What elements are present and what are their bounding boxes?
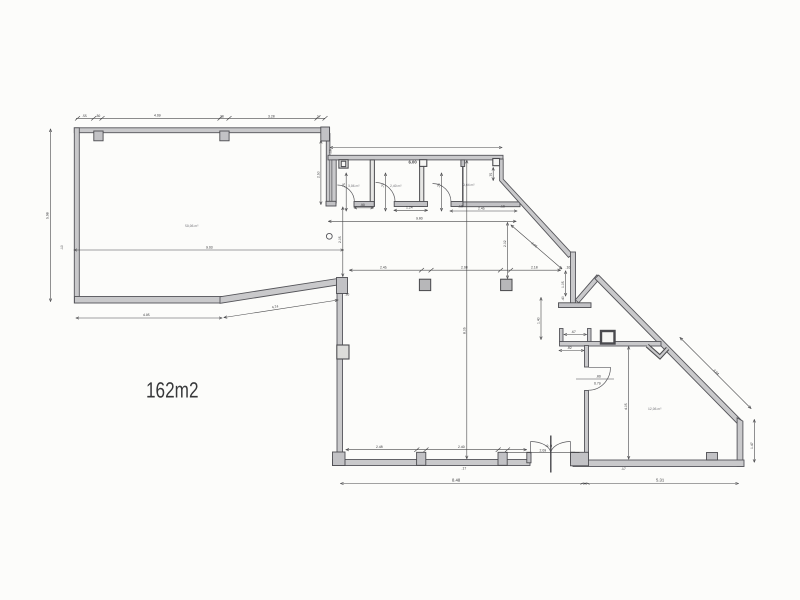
svg-text:.70: .70	[381, 183, 385, 188]
svg-text:.17: .17	[621, 467, 626, 471]
svg-text:4.09: 4.09	[154, 113, 161, 117]
svg-text:.10: .10	[500, 205, 505, 209]
svg-text:9.80: 9.80	[416, 217, 423, 221]
svg-text:9.03: 9.03	[206, 245, 213, 249]
svg-text:.30: .30	[345, 293, 350, 297]
svg-text:.70: .70	[437, 183, 441, 188]
svg-text:.67: .67	[571, 330, 576, 334]
svg-text:2.18: 2.18	[531, 266, 538, 270]
svg-text:2.48: 2.48	[376, 445, 383, 449]
svg-text:3,06 m²: 3,06 m²	[348, 184, 360, 188]
svg-text:5.98: 5.98	[46, 212, 50, 219]
svg-text:12,06 m²: 12,06 m²	[648, 407, 662, 411]
svg-text:4.95: 4.95	[143, 313, 150, 317]
svg-text:.75: .75	[342, 183, 346, 188]
svg-text:2.09: 2.09	[540, 449, 547, 453]
svg-text:.17: .17	[462, 466, 467, 470]
svg-text:6.00: 6.00	[409, 160, 418, 165]
svg-text:1.47: 1.47	[750, 442, 754, 449]
svg-text:.75: .75	[489, 173, 493, 178]
svg-text:2.45: 2.45	[478, 206, 485, 210]
svg-text:2.05: 2.05	[338, 236, 342, 243]
svg-text:9,04 m²: 9,04 m²	[463, 183, 475, 187]
svg-text:4.05: 4.05	[624, 403, 628, 410]
svg-text:.10: .10	[458, 205, 463, 209]
svg-text:0.79: 0.79	[594, 382, 601, 386]
svg-text:.9 .9: .9 .9	[546, 444, 553, 448]
svg-text:3.28: 3.28	[268, 114, 275, 118]
svg-text:1.40: 1.40	[537, 317, 541, 324]
svg-text:.30: .30	[219, 114, 224, 118]
svg-text:8.48: 8.48	[452, 478, 461, 483]
svg-text:2,40 m²: 2,40 m²	[390, 184, 402, 188]
svg-text:2.02: 2.02	[503, 240, 507, 247]
svg-text:2.40: 2.40	[458, 445, 465, 449]
svg-text:.30: .30	[96, 114, 101, 118]
svg-text:.17: .17	[316, 114, 321, 118]
svg-text:.10: .10	[566, 266, 571, 270]
svg-text:5.31: 5.31	[656, 478, 665, 483]
svg-text:.80: .80	[596, 375, 601, 379]
svg-text:.55: .55	[82, 114, 87, 118]
svg-text:8.05: 8.05	[462, 327, 466, 334]
svg-text:50,06 m²: 50,06 m²	[185, 224, 199, 228]
svg-text:.40: .40	[561, 296, 565, 301]
svg-text:2.50: 2.50	[317, 171, 321, 178]
svg-text:1.24: 1.24	[406, 206, 413, 210]
svg-text:.16: .16	[329, 149, 333, 154]
svg-text:1.05: 1.05	[561, 281, 565, 288]
svg-text:2.45: 2.45	[380, 266, 387, 270]
svg-text:162m2: 162m2	[146, 378, 199, 403]
svg-text:.90: .90	[360, 203, 365, 207]
svg-text:.10: .10	[60, 245, 64, 250]
svg-text:.82: .82	[567, 346, 572, 350]
